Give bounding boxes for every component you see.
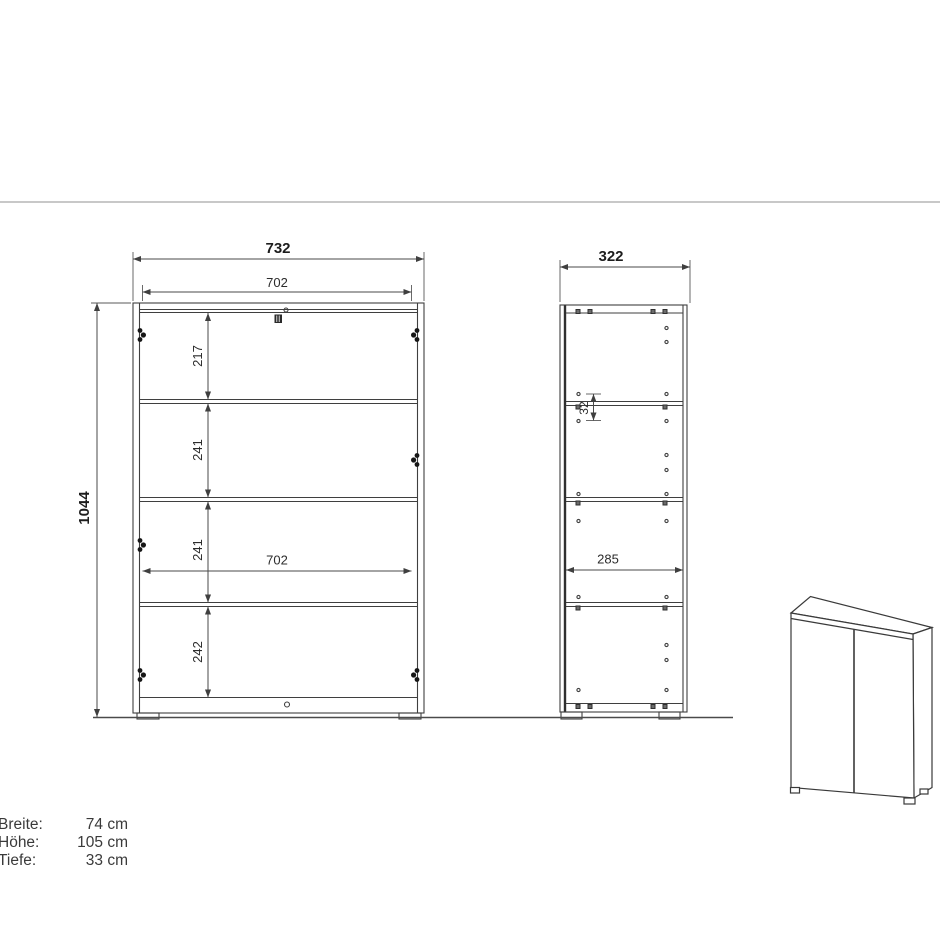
dim-shelf-spacing-1: 217	[190, 345, 205, 367]
hinge-icon	[411, 668, 419, 682]
dim-shelf-spacing-4: 242	[190, 641, 205, 663]
foot	[920, 789, 928, 794]
bottom-fitting-icon	[285, 702, 290, 707]
technical-drawing: 732 702 1044 217 241 241 242 702	[0, 0, 940, 940]
dim-front-overall-height: 1044	[76, 491, 93, 525]
fitting-squares	[576, 310, 667, 709]
foot	[791, 788, 800, 794]
spec-label-breite: Breite:	[0, 816, 56, 834]
hinge-icon	[138, 538, 146, 552]
dim-front-inner-width-top: 702	[266, 275, 288, 290]
dim-shelf-spacing-2: 241	[190, 439, 205, 461]
hinge-icon	[138, 668, 146, 682]
spec-label-tiefe: Tiefe:	[0, 852, 56, 870]
spec-row-depth: Tiefe: 33 cm	[0, 852, 128, 870]
foot	[904, 798, 915, 804]
spec-value-hoehe: 105 cm	[56, 834, 128, 852]
dim-front-overall-width: 732	[265, 240, 290, 257]
front-view-dimensions: 732 702 1044 217 241 241 242 702	[76, 240, 424, 717]
lock-icon	[275, 308, 289, 323]
front-view	[133, 303, 424, 719]
dim-front-inner-width-mid: 702	[266, 553, 288, 568]
hinge-icon	[411, 453, 419, 467]
spec-row-width: Breite: 74 cm	[0, 816, 128, 834]
side-view	[560, 305, 687, 719]
dimensions-summary: Breite: 74 cm Höhe: 105 cm Tiefe: 33 cm	[0, 816, 128, 870]
spec-row-height: Höhe: 105 cm	[0, 834, 128, 852]
drawing-page: 732 702 1044 217 241 241 242 702	[0, 0, 940, 940]
hinge-icon	[138, 328, 146, 342]
shelf-pin-holes	[577, 326, 668, 691]
dim-side-overall-depth: 322	[598, 248, 623, 265]
cabinet-3d-thumbnail	[791, 597, 933, 805]
spec-label-hoehe: Höhe:	[0, 834, 56, 852]
hinge-icon	[411, 328, 419, 342]
dim-side-inner-depth: 285	[597, 552, 619, 567]
dim-shelf-spacing-3: 241	[190, 539, 205, 561]
spec-value-tiefe: 33 cm	[56, 852, 128, 870]
spec-value-breite: 74 cm	[56, 816, 128, 834]
dim-side-hole-pitch: 32	[577, 401, 591, 415]
